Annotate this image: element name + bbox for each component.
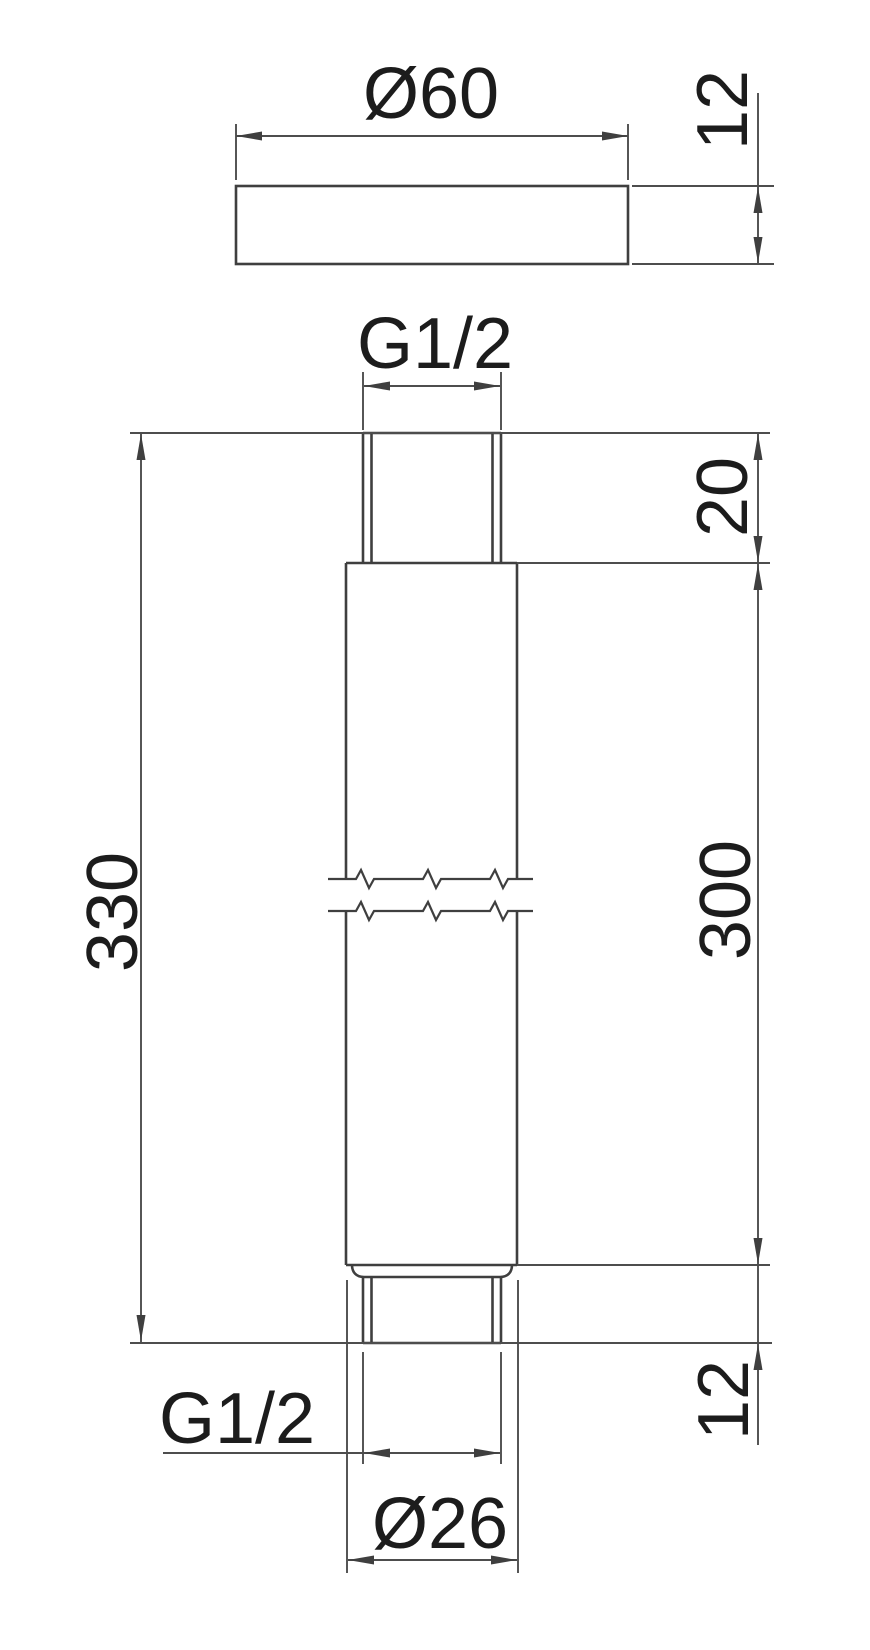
label-pipe-diameter: Ø26 xyxy=(372,1484,508,1564)
flange-side-view xyxy=(236,186,628,264)
drawing-page: Ø60 12 G1/2 20 300 12 xyxy=(0,0,870,1650)
label-overall-length: 330 xyxy=(73,852,153,972)
dim-top-thread: G1/2 xyxy=(357,304,513,430)
pipe-front-view xyxy=(328,433,533,1343)
label-body-length: 300 xyxy=(686,840,766,960)
dim-bottom-thread: G1/2 xyxy=(159,1352,501,1464)
dim-bottom-thread-length: 12 xyxy=(684,1344,764,1440)
dim-flange-thickness: 12 xyxy=(632,70,774,264)
technical-drawing: Ø60 12 G1/2 20 300 12 xyxy=(0,0,870,1650)
label-flange-thickness: 12 xyxy=(683,70,763,150)
label-top-thread: G1/2 xyxy=(357,304,513,384)
flange-outline xyxy=(236,186,628,264)
dim-overall-length: 330 xyxy=(73,433,153,1342)
label-bottom-thread-length: 12 xyxy=(684,1360,764,1440)
top-thread-section xyxy=(363,433,501,563)
bottom-collar xyxy=(352,1265,512,1277)
dim-flange-diameter: Ø60 xyxy=(236,54,628,180)
label-bottom-thread: G1/2 xyxy=(159,1379,315,1459)
label-flange-diameter: Ø60 xyxy=(363,54,499,134)
dim-body-length: 300 xyxy=(686,564,766,1264)
break-lines xyxy=(328,870,533,920)
bottom-thread-section xyxy=(363,1277,501,1343)
label-top-thread-length: 20 xyxy=(683,457,763,537)
